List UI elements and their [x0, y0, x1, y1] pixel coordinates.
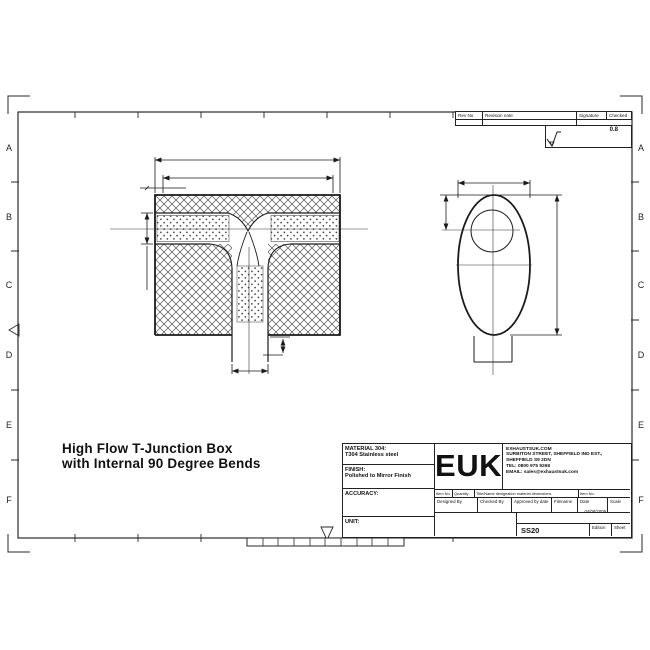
zone-letter-right-d: D: [635, 350, 647, 360]
accuracy-label: ACCURACY:: [345, 491, 434, 498]
parts-item-no2: Item No.: [579, 490, 630, 498]
date-cell: Date 04/06/2009: [578, 498, 608, 513]
drawing-number: SS20: [521, 526, 539, 535]
approved-by-cell: Approved by date: [512, 498, 552, 513]
zone-letter-left-b: B: [3, 212, 15, 222]
zone-letter-left-f: F: [3, 495, 15, 505]
checked-header: Checked: [606, 111, 632, 120]
parts-quantity: Quantity: [453, 490, 475, 498]
rev-no-cell: [455, 119, 483, 126]
surface-finish-box: 0.8: [545, 125, 632, 148]
designed-by-cell: Designed By: [435, 498, 478, 513]
company-email: EMAIL: sales@exhaustsuk.com: [506, 470, 630, 476]
date-value: 04/06/2009: [580, 509, 607, 514]
finish-cell: FINISH: Polished to Mirror Finish: [343, 465, 435, 489]
unit-label: UNIT:: [345, 519, 434, 526]
date-label: Date: [580, 499, 607, 506]
sheet-cell: Sheet: [611, 523, 630, 536]
zone-letter-right-f: F: [635, 495, 647, 505]
parts-title-name: Title/Name designation material dimensio…: [475, 490, 579, 498]
edition-cell: Edition: [589, 523, 611, 536]
zone-letter-right-e: E: [635, 420, 647, 430]
drawing-title-line2: with Internal 90 Degree Bends: [62, 456, 261, 471]
checked-by-cell: Checked By: [478, 498, 512, 513]
accuracy-cell: ACCURACY:: [343, 489, 435, 517]
surface-finish-value: 0.8: [610, 127, 618, 133]
material-value: T304 Stainless steel: [345, 452, 434, 459]
bottom-left-cell: [435, 513, 517, 536]
zone-letter-left-e: E: [3, 420, 15, 430]
zone-letter-right-b: B: [635, 212, 647, 222]
filename-cell: Filename: [552, 498, 578, 513]
surface-finish-icon: [546, 131, 562, 148]
unit-cell: UNIT:: [343, 517, 435, 536]
signature-header: Signature: [576, 111, 607, 120]
scale-cell: Scale: [608, 498, 630, 513]
end-view: [440, 180, 562, 375]
finish-value: Polished to Mirror Finish: [345, 473, 434, 480]
title-block: MATERIAL 304: T304 Stainless steel FINIS…: [342, 443, 632, 538]
drawing-title: High Flow T-Junction Box with Internal 9…: [62, 441, 261, 471]
zone-letter-right-a: A: [635, 143, 647, 153]
company-address: EXHAUSTSUK.COM SURBITON STREET, SHEFFIEL…: [503, 444, 630, 490]
zone-letter-left-c: C: [3, 280, 15, 290]
material-cell: MATERIAL 304: T304 Stainless steel: [343, 444, 435, 465]
zone-letter-left-d: D: [3, 350, 15, 360]
drawing-sheet: A B C D E F A B C D E F Rev No Revision …: [0, 0, 650, 650]
zone-letter-right-c: C: [635, 280, 647, 290]
drawing-title-line1: High Flow T-Junction Box: [62, 441, 261, 456]
company-logo: EUK: [435, 444, 503, 490]
zone-letter-left-a: A: [3, 143, 15, 153]
ruler-scale: [247, 538, 404, 546]
t-junction-view: [110, 157, 368, 374]
parts-item-no: Item No: [435, 490, 453, 498]
drawing-canvas: [0, 0, 650, 650]
